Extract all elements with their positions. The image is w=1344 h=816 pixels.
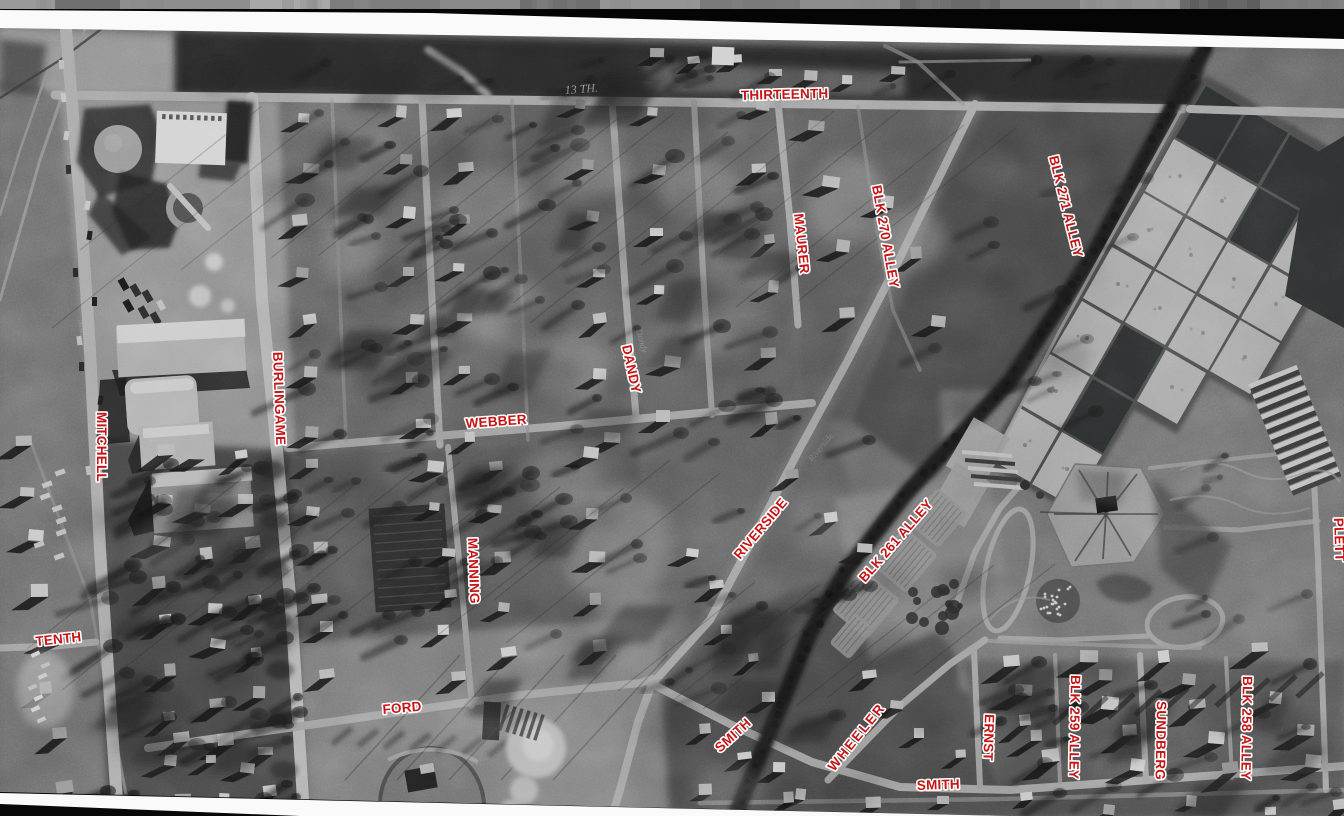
- svg-text:BLK 258 ALLEY: BLK 258 ALLEY: [1238, 676, 1255, 780]
- svg-text:MITCHELL: MITCHELL: [94, 412, 109, 482]
- svg-text:PLETT: PLETT: [1331, 518, 1344, 563]
- svg-text:MANNING: MANNING: [465, 538, 482, 604]
- svg-text:ERNST: ERNST: [980, 714, 997, 762]
- svg-text:SUNDBERG: SUNDBERG: [1153, 701, 1169, 780]
- svg-text:BLK 259 ALLEY: BLK 259 ALLEY: [1066, 675, 1083, 779]
- svg-text:THIRTEENTH: THIRTEENTH: [741, 86, 829, 103]
- svg-text:SMITH: SMITH: [917, 777, 960, 793]
